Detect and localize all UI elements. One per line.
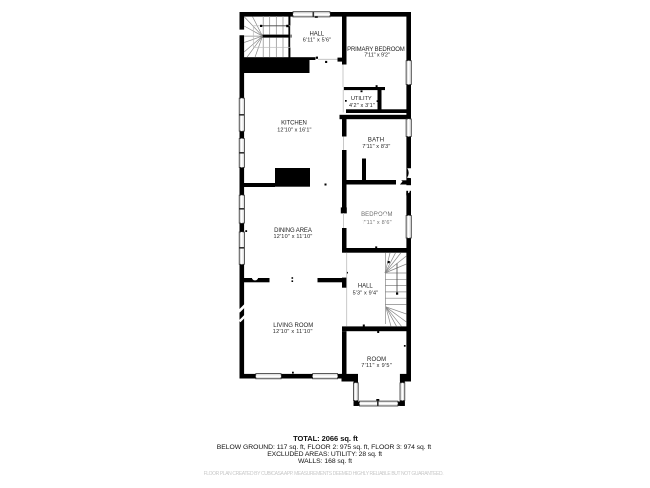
svg-text:4'2" x 3'1": 4'2" x 3'1": [349, 103, 375, 109]
svg-text:7'11" x 9'2": 7'11" x 9'2": [364, 53, 390, 59]
svg-text:BELOW GROUND: 117 sq. ft, FLOO: BELOW GROUND: 117 sq. ft, FLOOR 2: 975 s…: [217, 444, 432, 451]
svg-text:HALL: HALL: [358, 284, 374, 290]
svg-text:HALL: HALL: [310, 32, 325, 38]
svg-text:DINING AREA: DINING AREA: [274, 228, 312, 234]
svg-text:KITCHEN: KITCHEN: [281, 121, 307, 127]
svg-text:BATH: BATH: [368, 138, 384, 144]
svg-text:7'11" x 8'3": 7'11" x 8'3": [362, 144, 390, 150]
svg-text:TOTAL: 2066 sq. ft: TOTAL: 2066 sq. ft: [293, 434, 358, 443]
svg-text:5'3" x 9'4": 5'3" x 9'4": [353, 291, 379, 297]
svg-text:7'11" x 8'6": 7'11" x 8'6": [362, 220, 392, 226]
svg-text:7'11" x 9'5": 7'11" x 9'5": [361, 363, 392, 369]
svg-text:12'10" x 11'10": 12'10" x 11'10": [274, 234, 313, 240]
svg-text:EXCLUDED AREAS: UTILITY: 28 sq: EXCLUDED AREAS: UTILITY: 28 sq. ft: [267, 451, 382, 458]
svg-text:12'10" x 16'1": 12'10" x 16'1": [277, 128, 311, 134]
svg-text:UTILITY: UTILITY: [351, 96, 372, 102]
svg-text:6'11" x 5'6": 6'11" x 5'6": [303, 38, 331, 44]
svg-text:12'10" x 11'10": 12'10" x 11'10": [273, 329, 313, 335]
svg-text:FLOOR PLAN CREATED BY CUBICASA: FLOOR PLAN CREATED BY CUBICASA APP. MEAS…: [204, 471, 444, 477]
svg-text:WALLS: 168 sq. ft: WALLS: 168 sq. ft: [298, 458, 352, 465]
